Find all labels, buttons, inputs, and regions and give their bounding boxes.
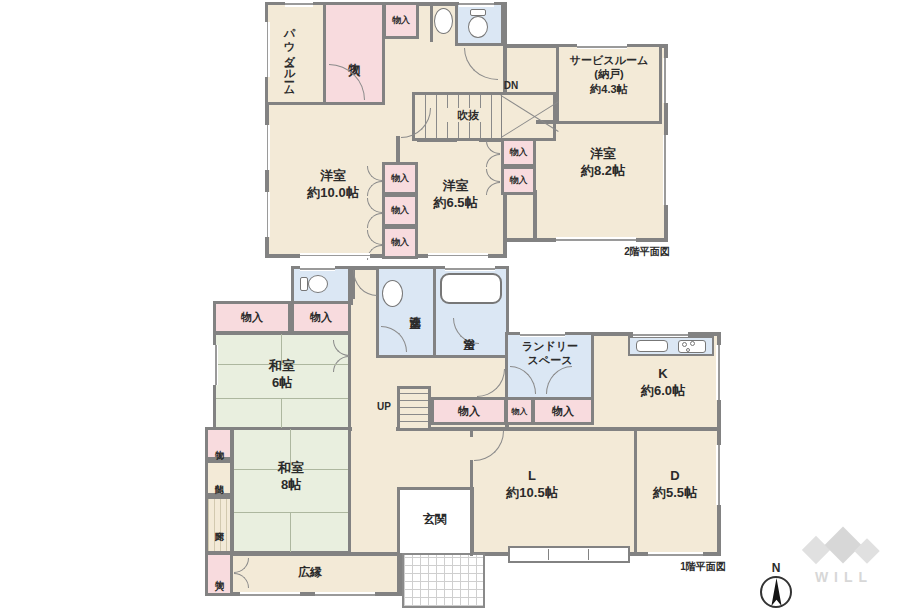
label-powder-room: パウダールーム (282, 10, 296, 100)
burner-icon (682, 342, 687, 347)
kitchen-sink-icon (636, 340, 668, 352)
label-floor2-caption: 2階平面図 (612, 245, 682, 258)
label-down: DN (496, 79, 526, 92)
window (716, 345, 721, 400)
room-tokonoma: 床間 (205, 496, 233, 554)
logo-diamond-icon (825, 527, 862, 564)
window (265, 125, 270, 170)
room-butsuma: 仏間 (205, 460, 233, 496)
label-north: N (762, 561, 790, 577)
wall (501, 95, 502, 138)
opening-patch (353, 352, 377, 360)
label-living: L 約10.5帖 (477, 468, 587, 502)
wall (470, 427, 473, 437)
label-west-room-82: 洋室 約8.2帖 (553, 146, 653, 180)
label-washitsu-6: 和室 6帖 (242, 358, 322, 392)
burner-icon (690, 341, 695, 346)
bay-window (508, 546, 630, 563)
opening-patch (352, 423, 396, 435)
label-dining: D 約5.5帖 (630, 468, 720, 502)
window (265, 192, 270, 237)
label-kitchen: K 約6.0帖 (628, 366, 698, 400)
window-tick (588, 549, 589, 560)
toilet-icon (308, 275, 328, 293)
label-bathroom: 浴室 (462, 310, 476, 350)
closet-2f-r1: 物入 (501, 138, 536, 167)
label-laundry: ランドリー スペース (507, 339, 593, 368)
label-genkan: 玄関 (405, 512, 465, 528)
logo-text: WILL (798, 568, 890, 586)
closet-1f-a: 物入 (213, 301, 291, 334)
window (300, 253, 370, 258)
window (265, 22, 270, 77)
window (577, 44, 627, 49)
toilet-icon (470, 9, 486, 16)
closet-2f-r2: 物入 (501, 166, 536, 195)
window (633, 332, 688, 337)
label-west-room-10: 洋室 約10.0帖 (283, 168, 383, 202)
window (459, 2, 494, 7)
wall (396, 136, 400, 164)
window (663, 58, 668, 103)
closet-2f-top: 物入 (383, 2, 419, 39)
wall (397, 552, 400, 596)
window (520, 332, 565, 337)
opening-patch (353, 299, 377, 307)
closet-2f-s3: 物入 (382, 226, 418, 259)
toilet-icon (300, 277, 308, 291)
washbasin-icon (382, 280, 403, 307)
bathtub-icon (440, 273, 502, 304)
label-closet: 物入 (386, 5, 416, 36)
window (213, 345, 218, 385)
logo-diamond-icon (802, 536, 830, 564)
wall (430, 2, 433, 42)
label-washitsu-8: 和室 8帖 (251, 460, 331, 494)
label-veranda: 広縁 (280, 565, 340, 581)
tatami-line (290, 512, 291, 552)
label-void: 吹抜 (446, 108, 490, 122)
closet-1f-c: 物入 (431, 397, 507, 425)
stair-treads (400, 389, 428, 428)
wall (470, 460, 473, 556)
tatami-line (216, 398, 348, 399)
wall (417, 138, 457, 142)
label-floor1-caption: 1階平面図 (668, 560, 738, 573)
burner-icon (686, 348, 690, 352)
window (556, 237, 636, 242)
closet-1f-d: 物入 (505, 397, 534, 425)
wall (533, 190, 537, 242)
window (315, 592, 375, 597)
window-tick (548, 549, 549, 560)
floorplan-canvas: パウダールーム 物入 物入 吹抜 DN サービスルーム (納戸) 約4.3帖 物… (0, 0, 920, 613)
label-service-room: サービスルーム (納戸) 約4.3帖 (558, 53, 660, 96)
tatami-line (234, 512, 348, 513)
closet-1f-e: 物入 (532, 397, 594, 425)
washbasin-icon (434, 8, 453, 34)
closet-1f-left: 物入 (205, 427, 233, 460)
entrance-porch (402, 553, 485, 608)
window (300, 266, 335, 271)
window (428, 253, 488, 258)
window (445, 266, 495, 271)
tatami-line (281, 398, 282, 428)
window (648, 552, 703, 557)
window (663, 135, 668, 205)
label-washroom: 洗面室 (408, 278, 422, 338)
closet-1f-b: 物入 (291, 301, 351, 334)
window (285, 2, 313, 7)
toilet-icon (468, 16, 488, 38)
label-west-room-65: 洋室 約6.5帖 (408, 178, 503, 212)
closet-1f-bottomleft: 物入 (205, 552, 233, 596)
label-up: UP (372, 400, 396, 413)
window (240, 592, 300, 597)
